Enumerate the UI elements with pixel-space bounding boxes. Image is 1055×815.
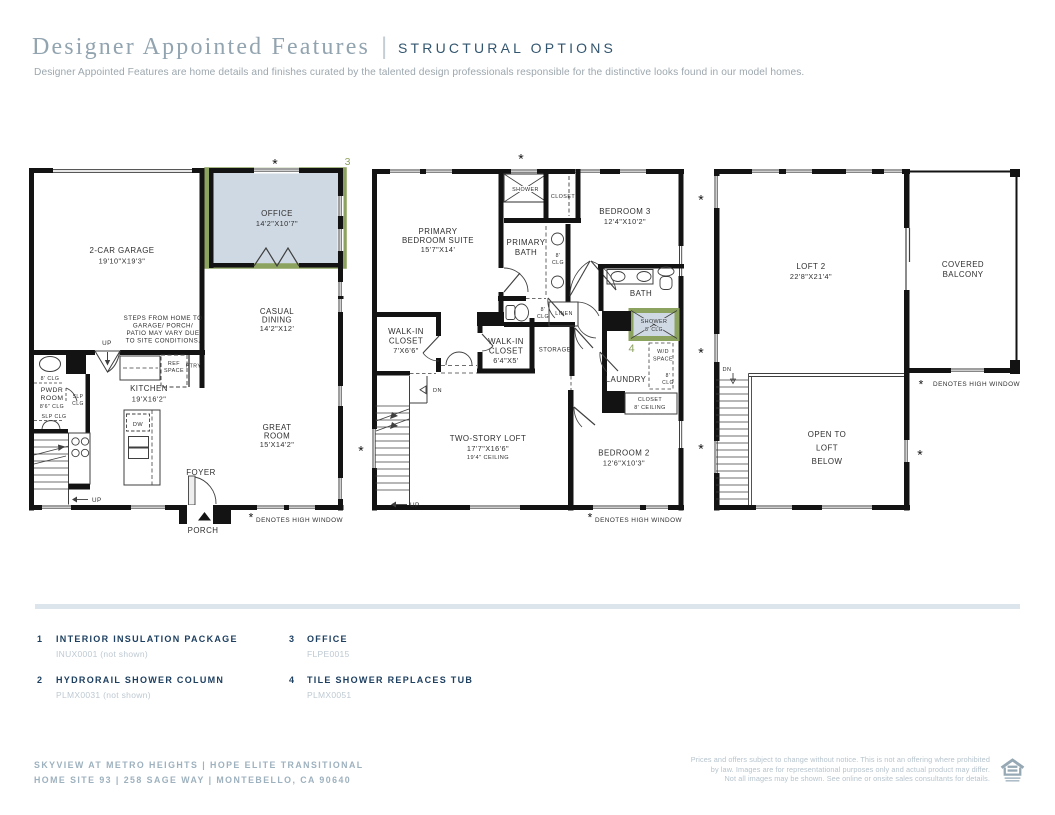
svg-text:LAUNDRY: LAUNDRY [606,375,647,384]
svg-text:PATIO MAY VARY DUE: PATIO MAY VARY DUE [127,330,200,337]
svg-text:CLOSET: CLOSET [638,397,663,403]
svg-text:SLP CLG: SLP CLG [42,414,67,420]
svg-text:TWO-STORY LOFT: TWO-STORY LOFT [450,434,526,443]
svg-text:LOFT: LOFT [816,444,838,453]
svg-text:*: * [917,447,923,463]
svg-text:CLG: CLG [552,260,564,266]
svg-text:BEDROOM 3: BEDROOM 3 [599,207,651,216]
svg-text:7'X6'6": 7'X6'6" [393,346,419,355]
svg-text:6'4"X5': 6'4"X5' [493,356,519,365]
svg-text:PORCH: PORCH [188,526,219,535]
svg-text:3: 3 [345,156,351,168]
svg-text:CLG: CLG [662,380,674,386]
svg-text:12'6"X10'3": 12'6"X10'3" [603,459,645,468]
svg-text:STEPS FROM HOME TO: STEPS FROM HOME TO [124,315,203,322]
svg-text:*: * [698,192,704,208]
svg-text:CLG: CLG [72,401,84,407]
svg-text:BELOW: BELOW [812,457,843,466]
svg-text:COVERED: COVERED [942,260,984,269]
svg-text:DENOTES HIGH WINDOW: DENOTES HIGH WINDOW [595,517,683,524]
svg-text:PWDR: PWDR [41,387,64,394]
svg-text:19'4" CEILING: 19'4" CEILING [467,455,509,461]
svg-text:BATH: BATH [630,289,652,298]
svg-text:UP: UP [102,340,112,347]
svg-text:8'6" CLG: 8'6" CLG [40,404,64,410]
svg-text:CLOSET: CLOSET [551,194,576,200]
svg-text:15'7"X14': 15'7"X14' [421,245,456,254]
svg-text:8': 8' [541,307,546,313]
svg-text:*: * [358,443,364,459]
svg-text:8' CLG: 8' CLG [41,376,60,382]
svg-text:*: * [698,441,704,457]
svg-text:14'2"X10'7": 14'2"X10'7" [256,219,298,228]
svg-text:UP: UP [92,497,102,504]
svg-text:REF: REF [168,361,180,367]
svg-text:BALCONY: BALCONY [943,270,984,279]
svg-text:CLOSET: CLOSET [489,347,523,356]
svg-text:DENOTES HIGH WINDOW: DENOTES HIGH WINDOW [933,381,1021,388]
svg-text:SHOWER: SHOWER [512,187,539,193]
svg-text:W/D: W/D [657,349,669,355]
svg-text:*: * [249,510,254,524]
svg-text:BEDROOM SUITE: BEDROOM SUITE [402,236,474,245]
svg-text:WALK-IN: WALK-IN [488,337,524,346]
svg-text:SHOWER: SHOWER [641,319,668,325]
svg-text:8' CEILING: 8' CEILING [634,405,666,411]
svg-text:8': 8' [556,253,561,259]
svg-text:17'7"X16'6": 17'7"X16'6" [467,444,509,453]
svg-text:8': 8' [666,373,671,379]
svg-text:SPACE: SPACE [653,357,673,363]
svg-text:*: * [518,151,524,167]
svg-text:PRIMARY: PRIMARY [507,238,546,247]
svg-text:DW: DW [133,422,143,428]
svg-text:*: * [588,510,593,524]
svg-text:2-CAR GARAGE: 2-CAR GARAGE [89,246,154,255]
svg-text:LINEN: LINEN [555,311,573,317]
svg-text:8' CLG: 8' CLG [645,327,663,333]
svg-text:12'4"X10'2": 12'4"X10'2" [604,217,646,226]
svg-text:DENOTES HIGH WINDOW: DENOTES HIGH WINDOW [256,517,344,524]
svg-text:TO SITE CONDITIONS.: TO SITE CONDITIONS. [126,338,201,345]
svg-text:14'2"X12': 14'2"X12' [260,324,295,333]
svg-text:PRIMARY: PRIMARY [419,227,458,236]
svg-text:UP: UP [410,502,420,509]
svg-text:WALK-IN: WALK-IN [388,327,424,336]
svg-text:OPEN TO: OPEN TO [808,430,846,439]
svg-text:KITCHEN: KITCHEN [130,384,168,393]
svg-text:*: * [698,345,704,361]
svg-text:DN: DN [433,388,442,394]
svg-text:BATH: BATH [515,248,537,257]
svg-text:ROOM: ROOM [41,395,64,402]
svg-text:PTRY: PTRY [186,364,202,370]
svg-text:CLG: CLG [537,314,549,320]
svg-text:CLOSET: CLOSET [389,337,423,346]
svg-text:LOFT 2: LOFT 2 [796,262,825,271]
svg-text:GARAGE/ PORCH/: GARAGE/ PORCH/ [133,323,193,330]
svg-text:OFFICE: OFFICE [261,209,293,218]
svg-text:19'10"X19'3": 19'10"X19'3" [99,257,146,266]
svg-text:DN: DN [723,367,732,373]
svg-text:19'X16'2": 19'X16'2" [132,395,167,404]
svg-text:15'X14'2": 15'X14'2" [260,440,295,449]
svg-text:*: * [272,156,278,172]
svg-text:22'8"X21'4": 22'8"X21'4" [790,272,832,281]
svg-text:STORAGE: STORAGE [539,348,571,354]
svg-text:SPACE: SPACE [164,368,184,374]
svg-text:*: * [919,377,924,391]
svg-text:4: 4 [628,343,634,355]
svg-text:BEDROOM 2: BEDROOM 2 [598,449,649,458]
